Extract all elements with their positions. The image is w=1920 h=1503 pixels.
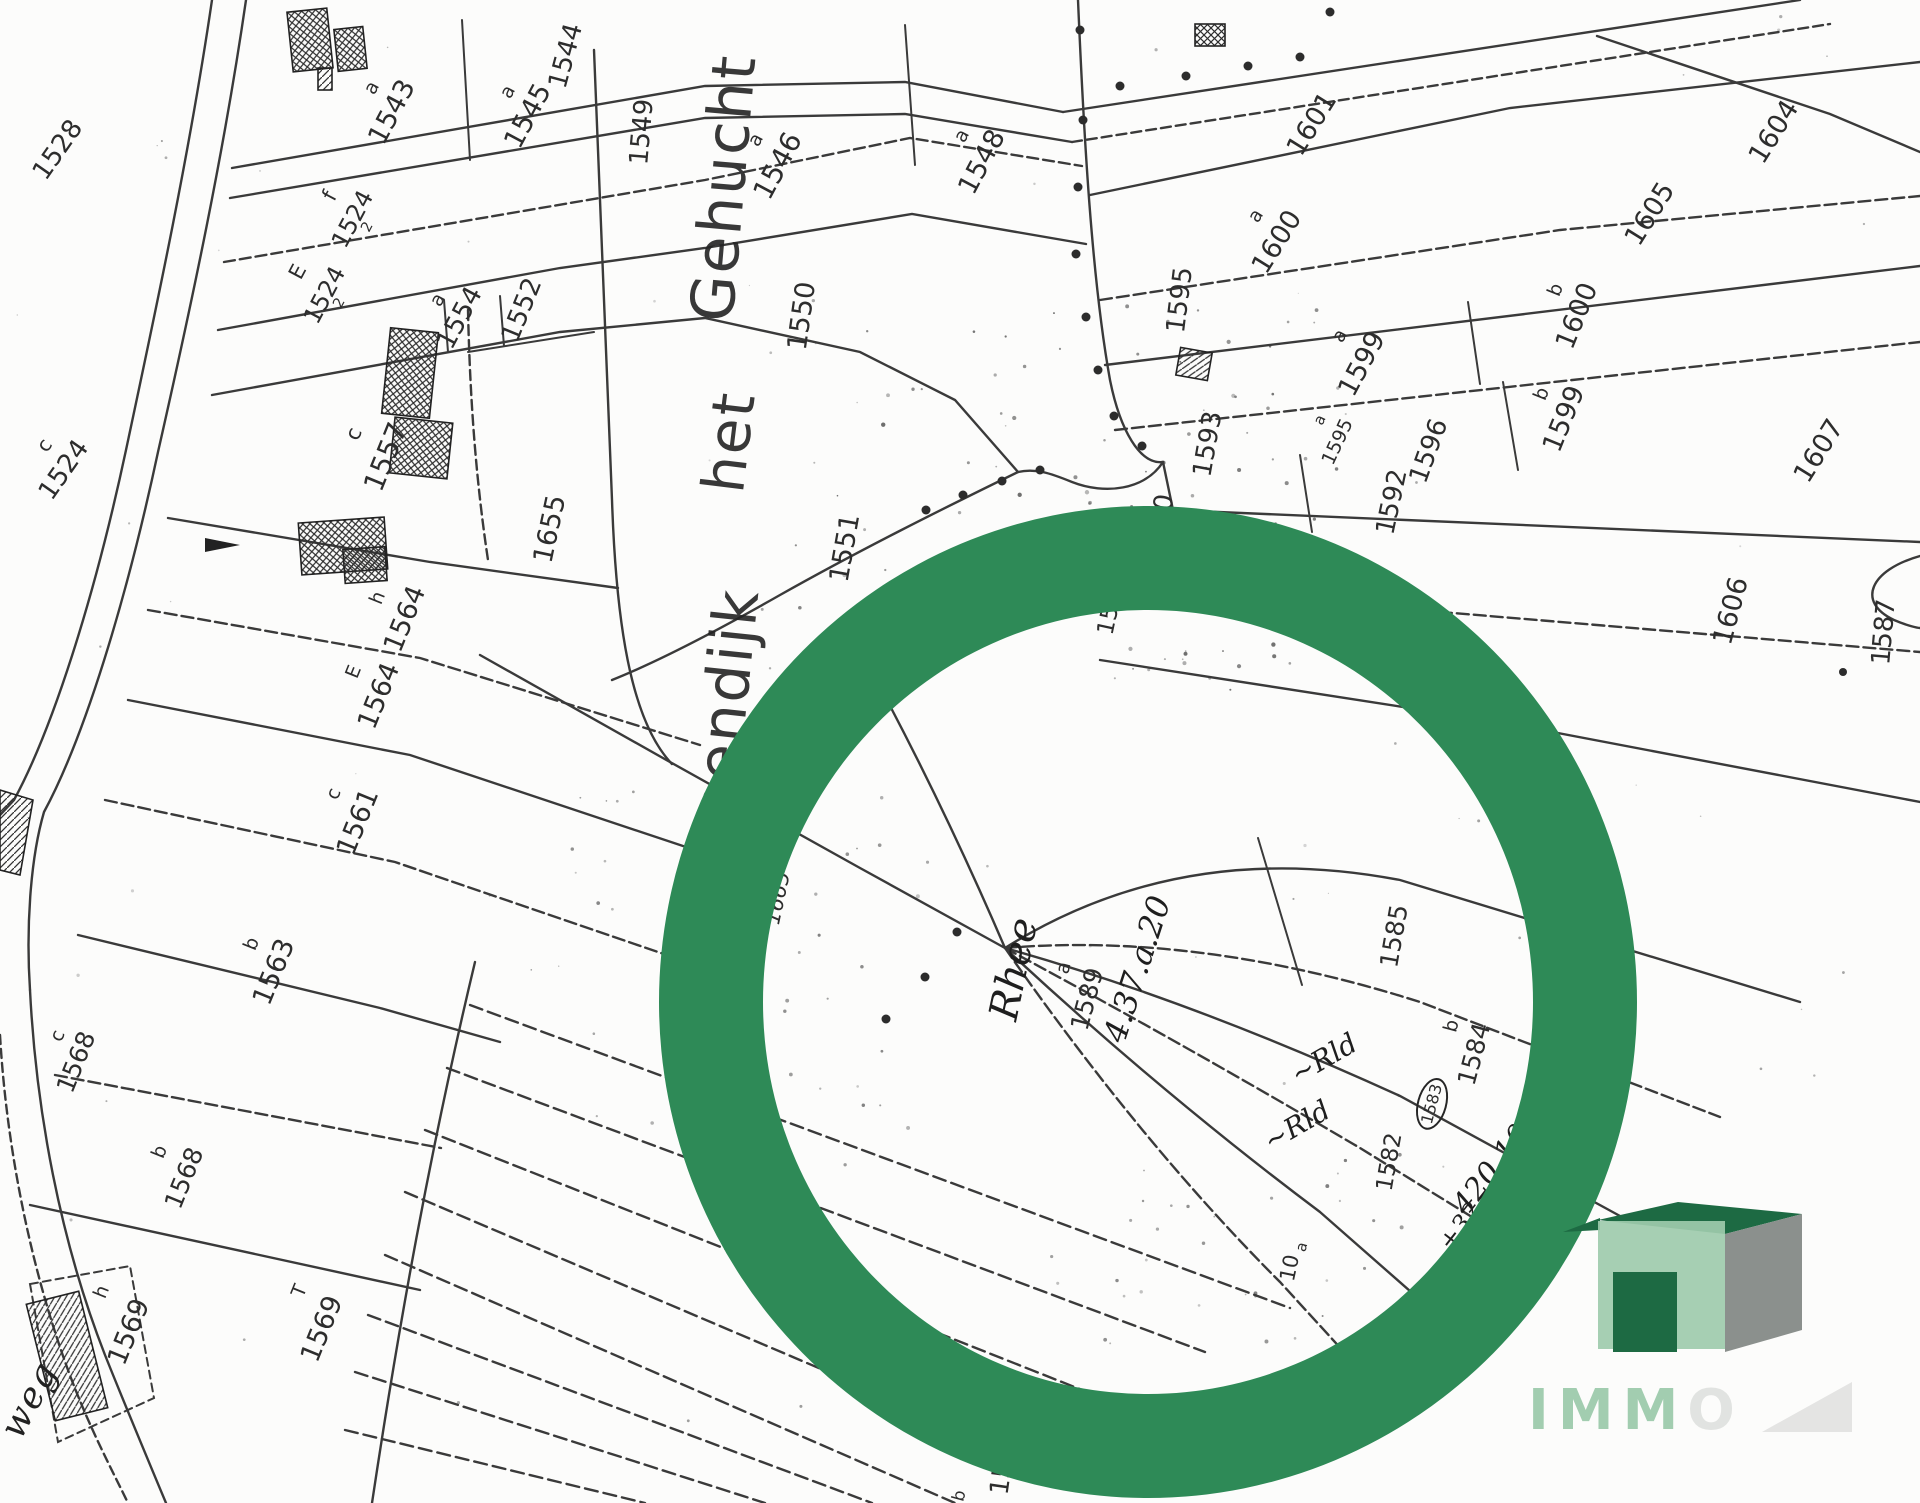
watermark-text: IMMO xyxy=(1528,1378,1744,1443)
parcel-letter: a xyxy=(1245,206,1267,226)
parcel-number: 1552 xyxy=(498,274,547,345)
parcel-letter: b xyxy=(950,1489,969,1503)
parcel-number: 1549 xyxy=(626,98,658,166)
parcel-letter: a xyxy=(1329,326,1351,345)
parcel-number: 1554 xyxy=(433,283,487,354)
parcel-number: 1655 xyxy=(530,493,571,566)
handwriting-note: +32 xyxy=(1434,1198,1486,1255)
parcel-number: 1589 xyxy=(1095,575,1130,637)
parcel-number: 10 xyxy=(1277,1253,1303,1284)
parcel-number: 1592 xyxy=(1372,467,1411,537)
parcel-letter: c xyxy=(33,435,56,455)
parcel-letter: b xyxy=(1441,1018,1462,1035)
parcel-number: 1591 xyxy=(1331,564,1368,634)
parcel-number: 1550 xyxy=(784,280,820,352)
parcel-letter: T xyxy=(289,1282,311,1300)
parcel-number: 1577 xyxy=(987,1427,1022,1496)
parcel-letter: a xyxy=(427,290,449,309)
parcel-number: 1585 xyxy=(1376,903,1412,970)
parcel-number: 1544 xyxy=(545,21,587,92)
parcel-letter: a xyxy=(951,126,973,145)
handwriting-note: Rhee xyxy=(984,914,1045,1023)
parcel-number: 1582 xyxy=(1374,1131,1407,1193)
parcel-number: 1564 xyxy=(380,582,431,656)
parcel-letter: h xyxy=(367,589,389,607)
parcel-letter: a xyxy=(1294,1241,1311,1254)
handwriting-note: ~Rld xyxy=(1259,1096,1335,1156)
parcel-number: 1583 xyxy=(1411,1075,1454,1134)
parcel-fraction: 2 xyxy=(319,273,360,334)
parcel-letter: a xyxy=(1311,413,1328,428)
watermark-text-visible: IMM xyxy=(1528,1378,1687,1443)
handwriting-note: 4.37.a.20 xyxy=(1098,892,1175,1046)
parcel-letter: b xyxy=(1531,385,1553,403)
watermark-text-faint: O xyxy=(1687,1378,1744,1443)
parcel-letter: b xyxy=(149,1143,171,1161)
parcel-number: 1569 xyxy=(297,1292,348,1366)
parcel-fraction: 2 xyxy=(347,197,388,258)
parcel-number: 1601 xyxy=(1282,88,1341,161)
parcel-number: 1557 xyxy=(360,419,413,496)
handwriting-note: ~Rld xyxy=(1286,1029,1362,1089)
parcel-letter: a xyxy=(745,130,767,149)
parcel-letter: c xyxy=(342,425,366,444)
parcel-number: 1665 xyxy=(762,870,794,927)
parcel-letter: E xyxy=(343,663,365,681)
parcel-letter: E xyxy=(286,261,311,283)
parcel-letter: b xyxy=(241,935,263,953)
parcel-letter: a xyxy=(1053,960,1074,976)
parcel-number: 1569 xyxy=(104,1295,155,1369)
parcel-letter: b xyxy=(1545,281,1567,299)
parcel-letter: f xyxy=(319,188,341,204)
parcel-number: 1551 xyxy=(826,512,865,584)
parcel-letter: a xyxy=(361,78,383,97)
parcel-number: 1590 xyxy=(1141,492,1178,562)
road-label: weg xyxy=(0,1356,65,1445)
parcel-number: 1593 xyxy=(1189,409,1226,479)
parcel-number: 1587 xyxy=(1868,598,1900,666)
parcel-number: 1605 xyxy=(1620,178,1679,251)
parcel-number: 1528 xyxy=(28,115,87,184)
parcel-labels: 1528c1524a15431544a15451549f15242E15242a… xyxy=(0,0,1920,1503)
parcel-number: 1606 xyxy=(1709,574,1753,647)
parcel-number: 1607 xyxy=(1789,415,1848,488)
parcel-number: 1595 xyxy=(1163,266,1197,335)
parcel-letter: a xyxy=(497,82,519,101)
parcel-letter: h xyxy=(91,1283,113,1301)
parcel-letter: c xyxy=(323,786,345,803)
parcel-number: 1604 xyxy=(1744,96,1803,169)
cadastral-map: Genendijk het Gehucht 1528c1524a15431544… xyxy=(0,0,1920,1503)
parcel-letter: c xyxy=(47,1028,69,1045)
